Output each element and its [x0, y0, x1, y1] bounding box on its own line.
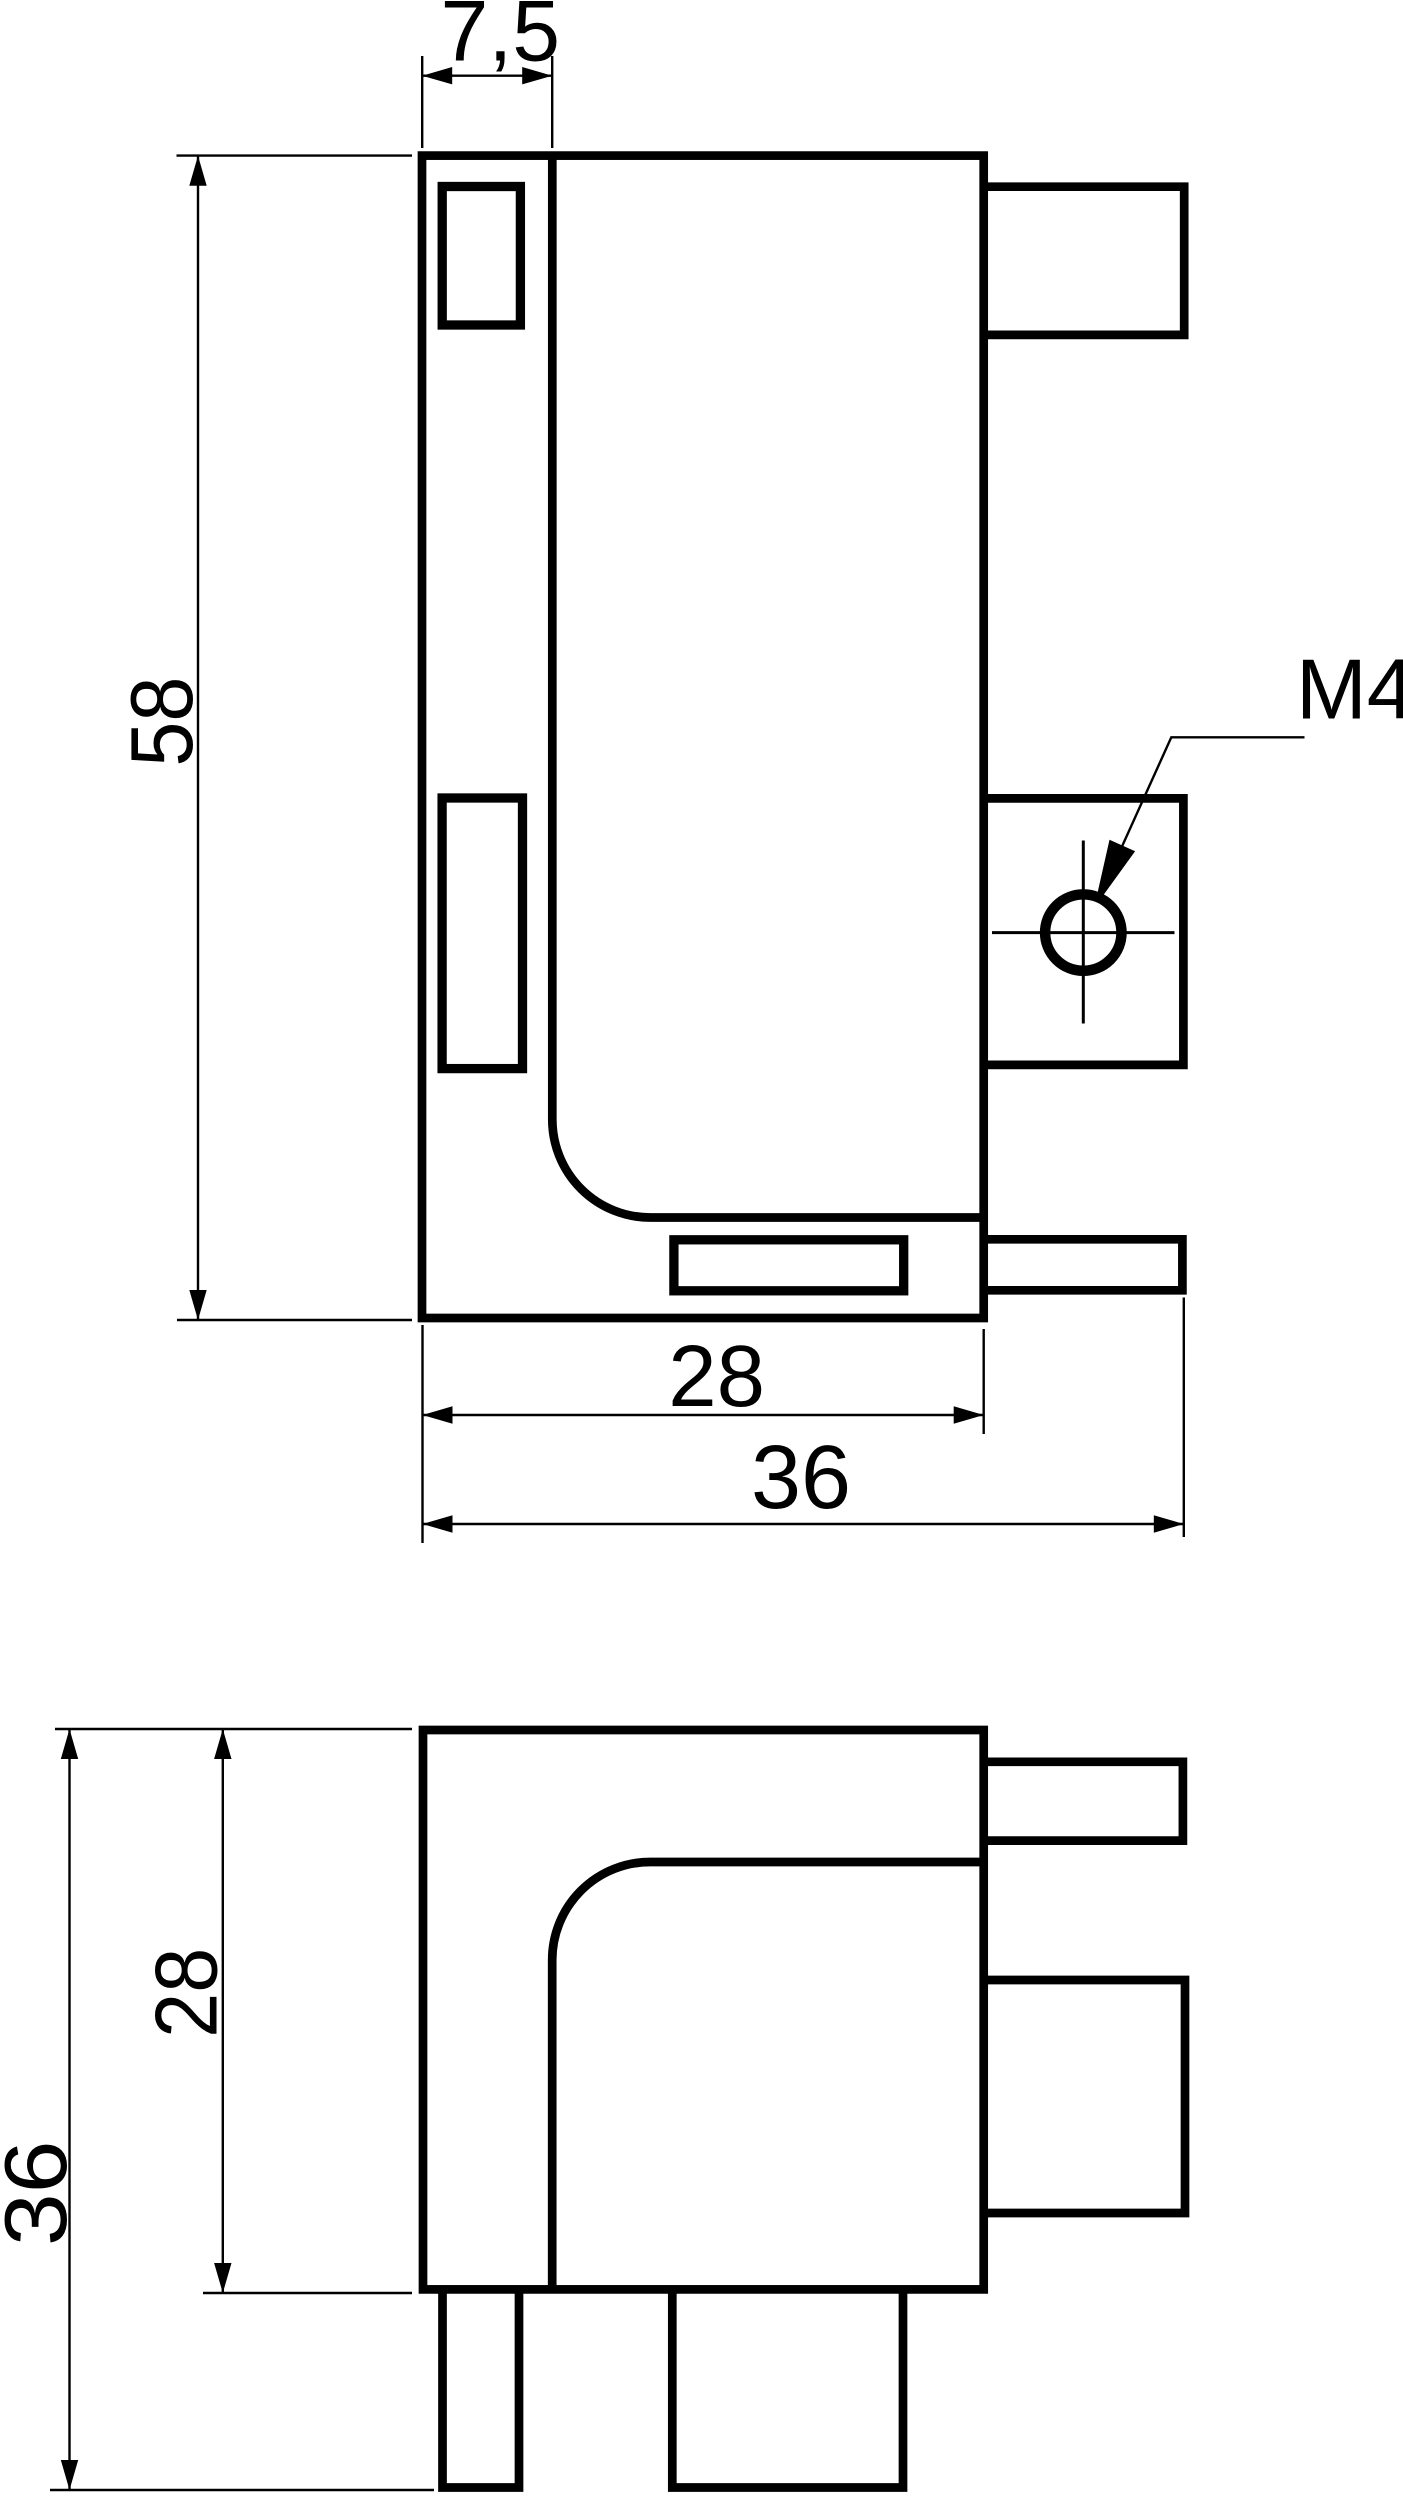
- svg-text:36: 36: [751, 1428, 851, 1528]
- svg-text:7,5: 7,5: [441, 0, 561, 80]
- svg-text:58: 58: [112, 677, 211, 767]
- svg-text:28: 28: [668, 1328, 765, 1425]
- svg-text:M4: M4: [1296, 643, 1403, 738]
- svg-text:36: 36: [0, 2140, 85, 2246]
- svg-text:28: 28: [136, 1948, 235, 2038]
